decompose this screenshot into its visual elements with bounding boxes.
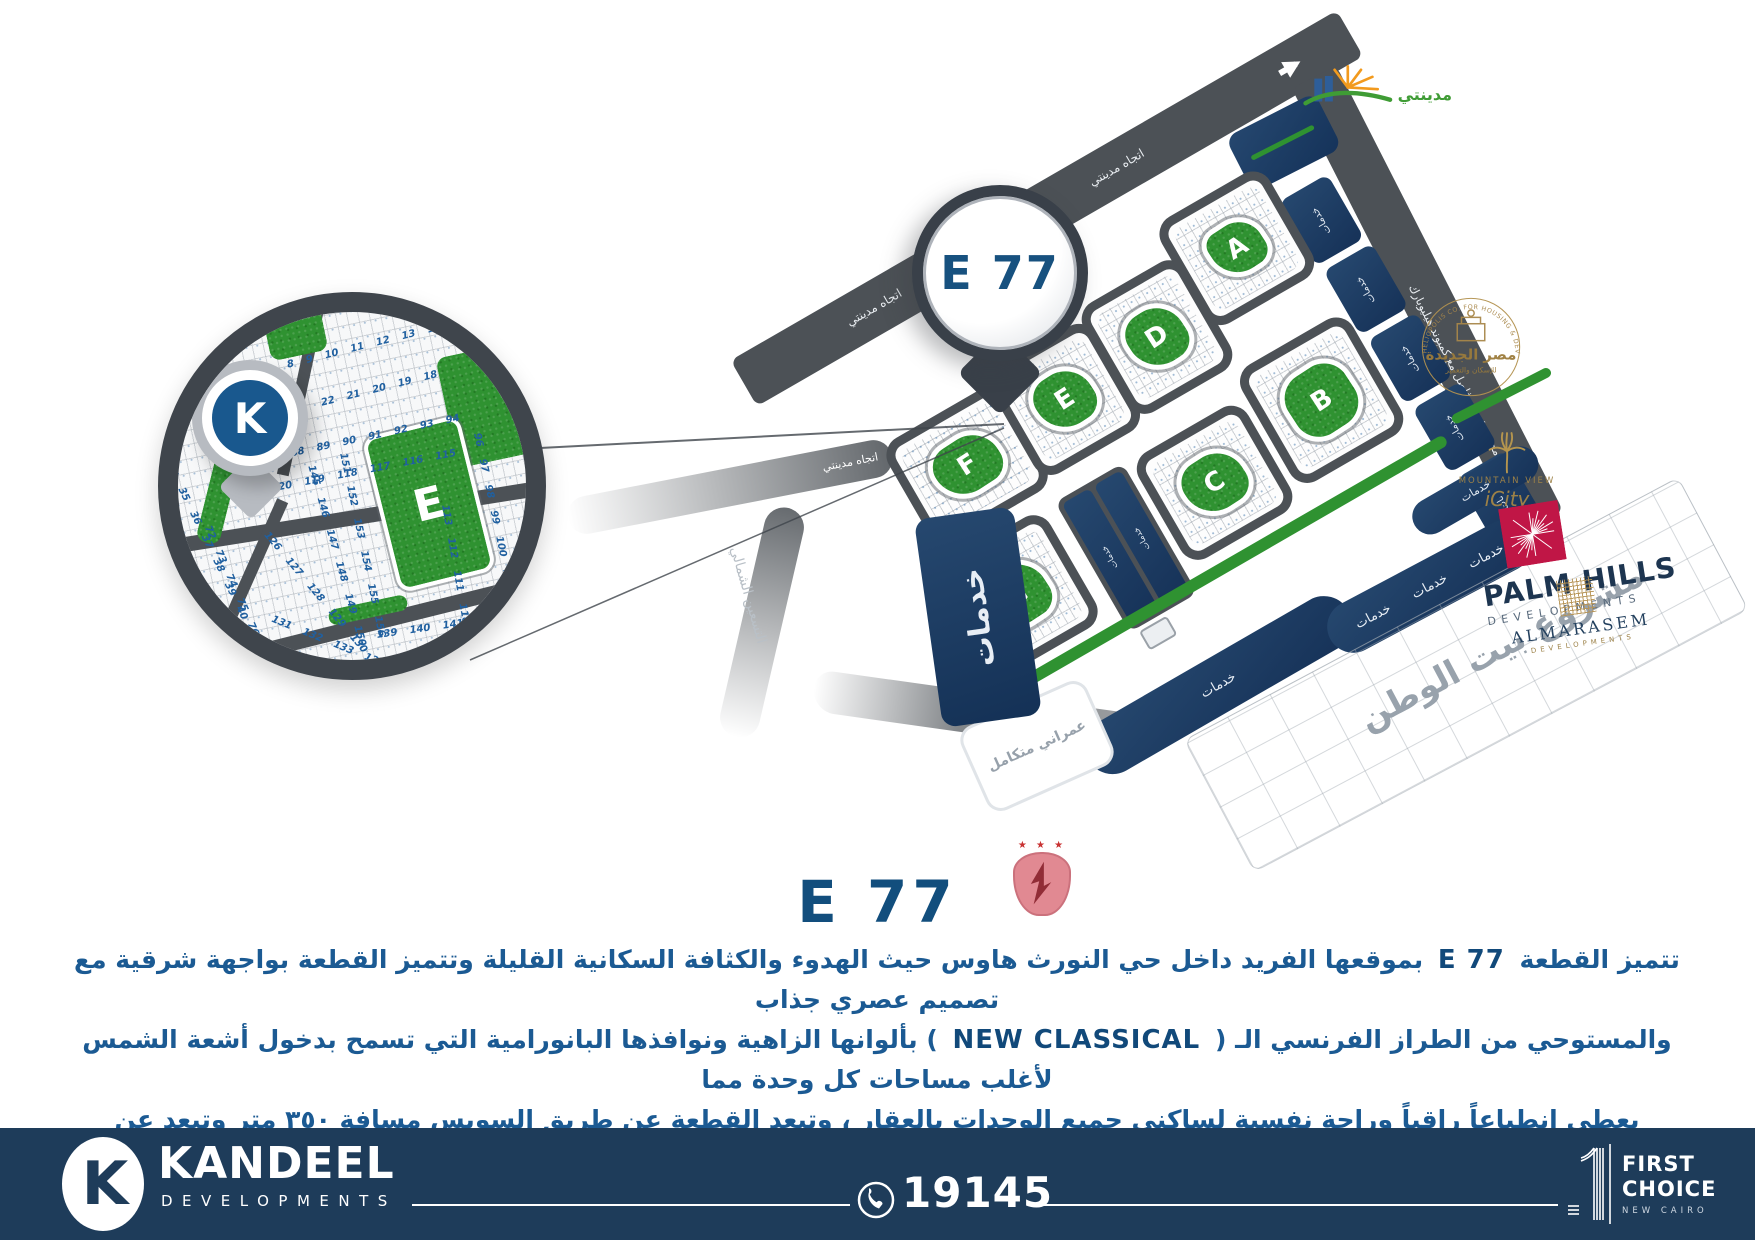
- kandeel-map-pin: K: [188, 352, 318, 542]
- e77-pin-label: E 77: [940, 246, 1059, 300]
- desc-2b: ) بألوانها الزاهية ونوافذها البانورامية …: [82, 1025, 1052, 1094]
- almarasem-emblem-icon: [1556, 576, 1597, 617]
- hotline-number: 19145: [902, 1168, 1053, 1217]
- block-d-park: D: [1117, 297, 1197, 377]
- block-a-letter: A: [1220, 230, 1253, 266]
- e77-pin-circle: E 77: [912, 185, 1088, 361]
- block-c-letter: C: [1198, 465, 1230, 501]
- description-line-2: والمستوحي من الطراز الفرنسي الـ ( NEW CL…: [72, 1020, 1682, 1100]
- block-a-park: A: [1201, 213, 1273, 284]
- first-choice-one-icon: [1566, 1144, 1612, 1224]
- first-choice-line1: FIRST: [1622, 1152, 1716, 1177]
- green-median: [1250, 125, 1315, 161]
- kandeel-brand-sub: DEVELOPMENTS: [161, 1192, 397, 1210]
- services-label: خدمات: [1409, 571, 1450, 602]
- mountain-view-wordmark: MOUNTAIN VIEW: [1452, 476, 1562, 486]
- kandeel-logo-letter: K: [78, 1149, 129, 1219]
- heliopolis-housing-logo: HELIOPOLIS CO. FOR HOUSING & DEVELOPMENT…: [1412, 292, 1530, 402]
- kandeel-pin-letter: K: [234, 394, 267, 443]
- footer-bar: K KANDEEL DEVELOPMENTS 19145 FIRST CHOIC…: [0, 1128, 1755, 1240]
- footer-divider-line: [412, 1204, 850, 1206]
- services-label: خدمات: [1198, 669, 1238, 701]
- services-label: خدمات: [1353, 601, 1394, 632]
- palm-tree-icon: [1481, 424, 1533, 474]
- first-choice-line2: CHOICE: [1622, 1177, 1716, 1202]
- road-direction-label: اتجاه مدينتي: [821, 450, 879, 474]
- phone-icon: [856, 1180, 896, 1220]
- faded-road-west: اتجاه مدينتي: [564, 437, 895, 537]
- desc-1-en: E 77: [1432, 945, 1511, 975]
- description-line-1: تتميز القطعة E 77 بموقعها الفريد داخل حي…: [72, 940, 1682, 1020]
- block-b-park: B: [1275, 353, 1369, 447]
- block-b-letter: B: [1305, 382, 1338, 418]
- poster-canvas: اتجاه مدينتي التسعين الشمالي اتجاه مدينت…: [0, 0, 1755, 1240]
- footer-divider-line: [1030, 1204, 1558, 1206]
- heliopolis-name-ar: مصر الجديدة: [1426, 347, 1517, 364]
- services-label-large: خدمات: [954, 566, 1002, 669]
- e77-location-pin: E 77: [908, 185, 1092, 435]
- kandeel-pin-disc: K: [212, 380, 288, 456]
- ahly-stars: ★ ★ ★: [1003, 840, 1081, 852]
- madinaty-wordmark: مدينتي: [1398, 85, 1452, 114]
- desc-2-en: NEW CLASSICAL: [947, 1025, 1207, 1055]
- madinaty-logo: مدينتي: [1302, 44, 1452, 114]
- heliopolis-emblem-icon: HELIOPOLIS CO. FOR HOUSING & DEVELOPMENT…: [1412, 292, 1530, 402]
- zoom-inset-circle: E 8 9 10 11 12 13 14 15 16 17 22 21 20 1…: [158, 292, 546, 680]
- desc-1b: بموقعها الفريد داخل حي النورث هاوس حيث ا…: [74, 945, 1423, 1014]
- kandeel-pin-circle: K: [192, 360, 308, 476]
- block-c-park: C: [1173, 442, 1256, 523]
- desc-2a: والمستوحي من الطراز الفرنسي الـ (: [1215, 1025, 1672, 1054]
- first-choice-logo: FIRST CHOICE NEW CAIRO: [1566, 1144, 1716, 1224]
- block-f-park: F: [924, 424, 1010, 506]
- block-d-letter: D: [1140, 319, 1174, 356]
- palm-hills-starburst-icon: [1498, 500, 1567, 569]
- services-label: خدمات: [1131, 525, 1152, 552]
- integrated-urban-label: عمراني متكامل: [985, 717, 1088, 775]
- kandeel-brand: KANDEEL: [158, 1142, 395, 1186]
- madinaty-sun-icon: [1302, 52, 1394, 114]
- services-label: خدمات: [1100, 544, 1121, 571]
- road-direction-label: اتجاه مدينتي: [1086, 146, 1146, 189]
- kandeel-logo-ellipse: K: [62, 1137, 144, 1231]
- first-choice-line3: NEW CAIRO: [1622, 1206, 1716, 1216]
- page-title: E 77: [0, 868, 1755, 936]
- first-choice-text: FIRST CHOICE NEW CAIRO: [1622, 1152, 1716, 1216]
- heliopolis-sub-ar: للإسكان والتعمير: [1444, 365, 1496, 374]
- road-direction-label: اتجاه مدينتي: [844, 286, 904, 329]
- services-label: خدمات: [1354, 274, 1378, 305]
- block-f-letter: F: [951, 448, 982, 483]
- desc-1a: تتميز القطعة: [1520, 945, 1680, 974]
- services-label: خدمات: [1309, 205, 1333, 236]
